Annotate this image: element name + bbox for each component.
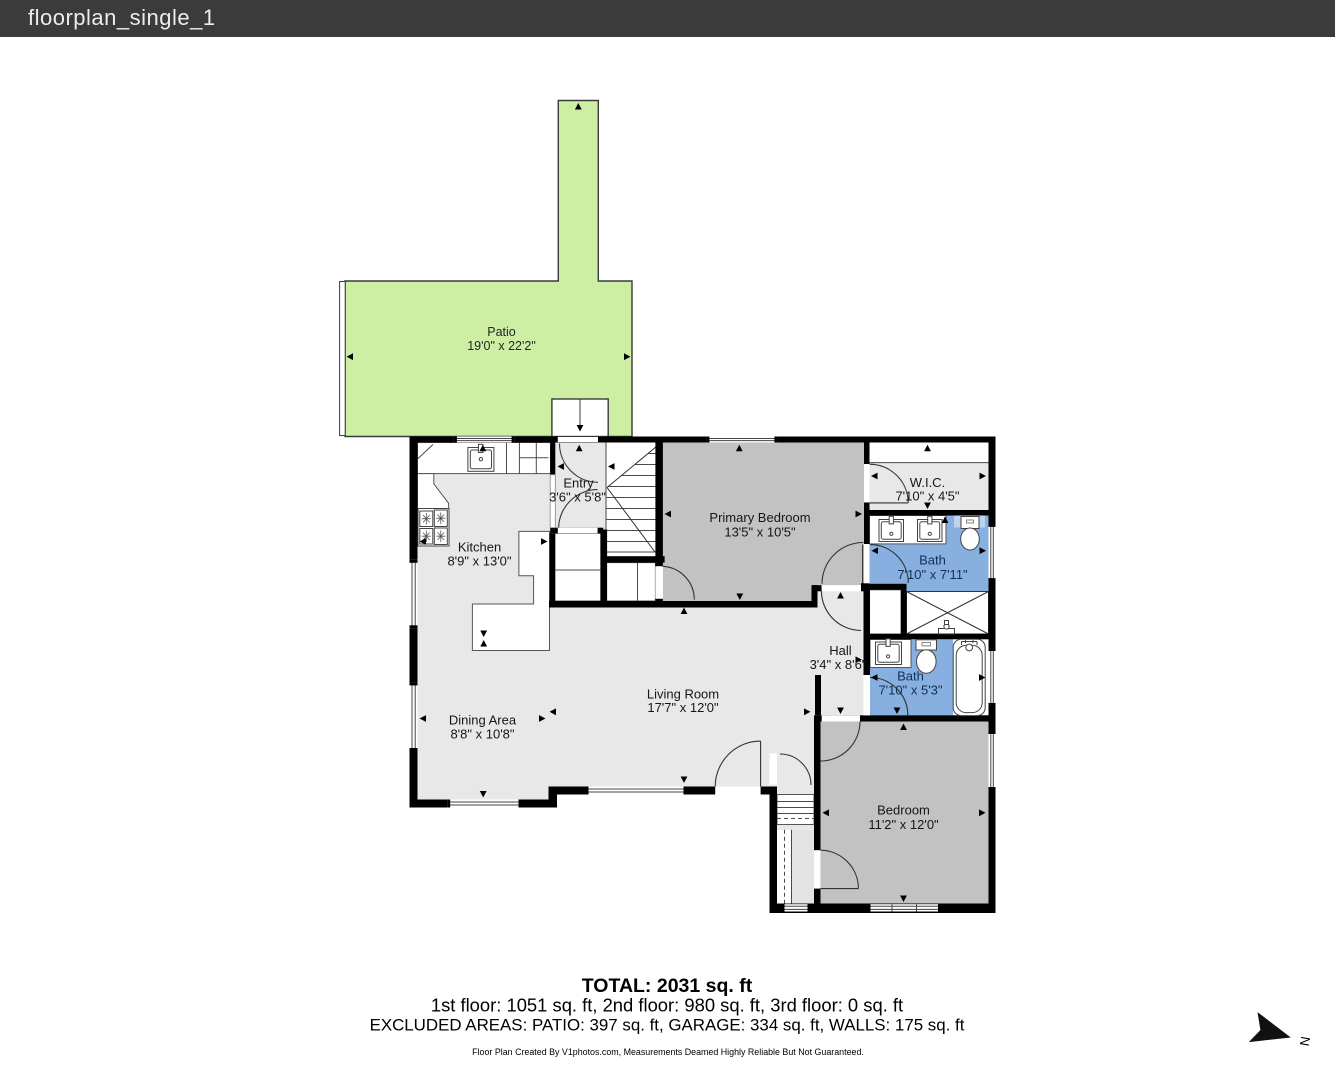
svg-text:13'5" x 10'5": 13'5" x 10'5" xyxy=(724,525,796,540)
svg-text:Hall: Hall xyxy=(829,643,852,658)
svg-text:19'0" x 22'2": 19'0" x 22'2" xyxy=(467,339,536,353)
svg-text:Bedroom: Bedroom xyxy=(877,803,930,818)
svg-text:3'4" x 8'6": 3'4" x 8'6" xyxy=(810,657,867,672)
svg-text:7'10" x 4'5": 7'10" x 4'5" xyxy=(895,489,959,504)
svg-text:Dining Area: Dining Area xyxy=(449,713,517,728)
svg-text:Primary Bedroom: Primary Bedroom xyxy=(709,510,810,525)
svg-text:Bath: Bath xyxy=(919,553,946,568)
svg-text:7'10" x 7'11": 7'10" x 7'11" xyxy=(897,567,968,582)
svg-text:Bath: Bath xyxy=(897,669,924,684)
svg-text:8'9" x 13'0": 8'9" x 13'0" xyxy=(447,554,511,569)
svg-text:N: N xyxy=(1297,1035,1313,1047)
svg-text:3'6" x 5'8": 3'6" x 5'8" xyxy=(549,490,606,505)
svg-text:1st floor: 1051 sq. ft, 2nd fl: 1st floor: 1051 sq. ft, 2nd floor: 980 s… xyxy=(431,995,903,1016)
svg-text:7'10" x 5'3": 7'10" x 5'3" xyxy=(878,683,942,698)
svg-text:Entry: Entry xyxy=(563,476,594,491)
svg-text:Floor Plan Created By V1photos: Floor Plan Created By V1photos.com, Meas… xyxy=(472,1047,864,1057)
svg-text:11'2" x 12'0": 11'2" x 12'0" xyxy=(868,817,939,832)
svg-text:Kitchen: Kitchen xyxy=(458,540,501,555)
svg-text:EXCLUDED AREAS: PATIO: 397 sq.: EXCLUDED AREAS: PATIO: 397 sq. ft, GARAG… xyxy=(370,1016,965,1035)
svg-text:Patio: Patio xyxy=(487,325,516,339)
svg-text:17'7" x 12'0": 17'7" x 12'0" xyxy=(647,700,719,715)
svg-text:8'8" x 10'8": 8'8" x 10'8" xyxy=(450,727,514,742)
